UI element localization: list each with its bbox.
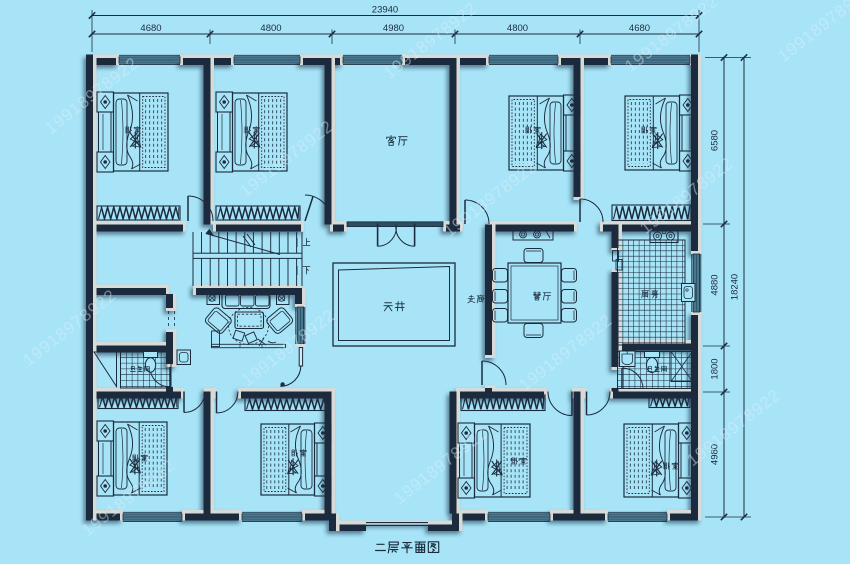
svg-text:4980: 4980	[383, 23, 404, 34]
svg-text:23940: 23940	[372, 5, 398, 16]
svg-text:4880: 4880	[710, 274, 721, 295]
svg-text:4800: 4800	[507, 23, 528, 34]
svg-text:4680: 4680	[140, 23, 161, 34]
svg-text:6580: 6580	[710, 130, 721, 151]
svg-text:18240: 18240	[730, 274, 741, 300]
svg-text:1800: 1800	[710, 358, 721, 379]
svg-text:4800: 4800	[260, 23, 281, 34]
svg-text:4680: 4680	[629, 23, 650, 34]
